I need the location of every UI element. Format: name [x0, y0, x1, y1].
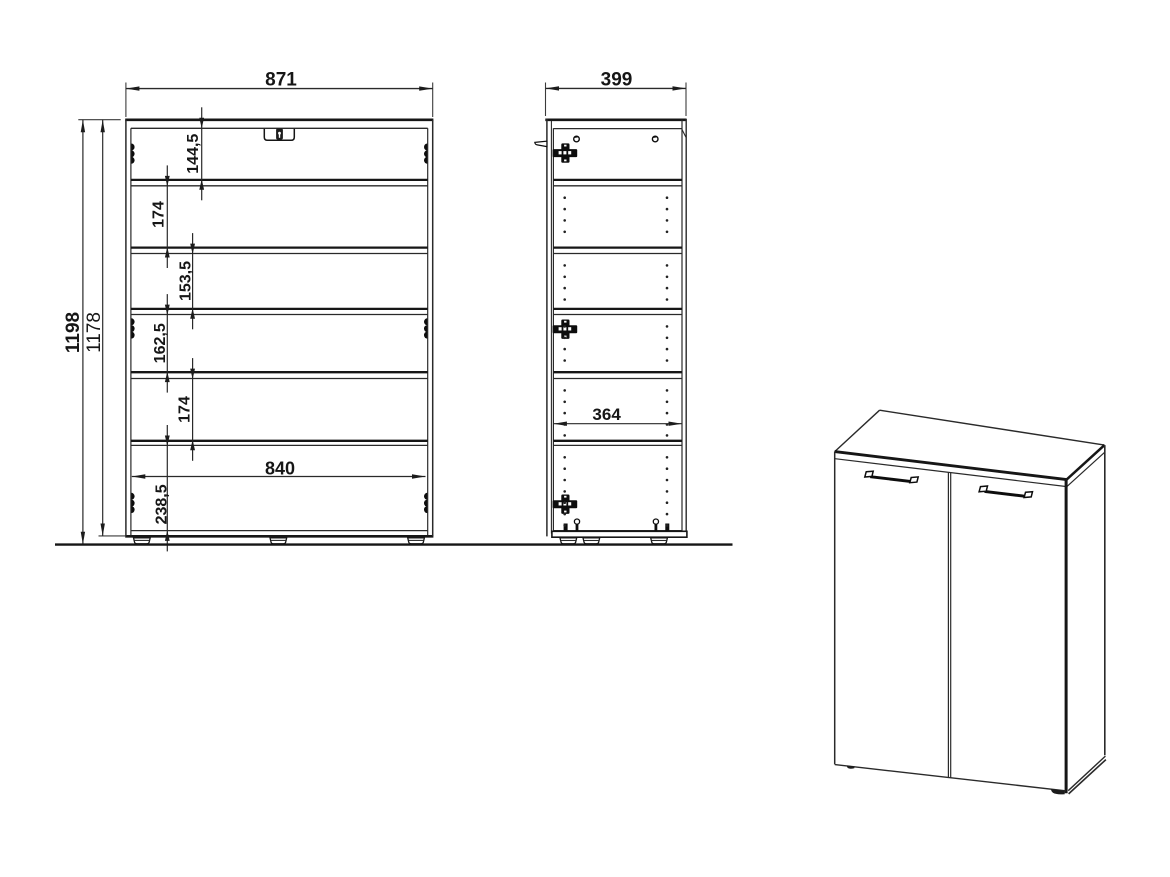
- svg-text:153,5: 153,5: [177, 261, 194, 301]
- svg-text:162,5: 162,5: [152, 323, 169, 363]
- svg-text:840: 840: [265, 458, 295, 478]
- svg-text:238,5: 238,5: [154, 484, 171, 524]
- svg-text:871: 871: [265, 70, 297, 91]
- svg-text:399: 399: [601, 69, 633, 90]
- svg-text:174: 174: [177, 396, 194, 423]
- svg-text:364: 364: [592, 405, 621, 424]
- svg-text:1178: 1178: [84, 312, 105, 353]
- svg-text:144,5: 144,5: [185, 134, 202, 174]
- svg-text:1198: 1198: [63, 312, 84, 353]
- svg-text:174: 174: [151, 201, 168, 228]
